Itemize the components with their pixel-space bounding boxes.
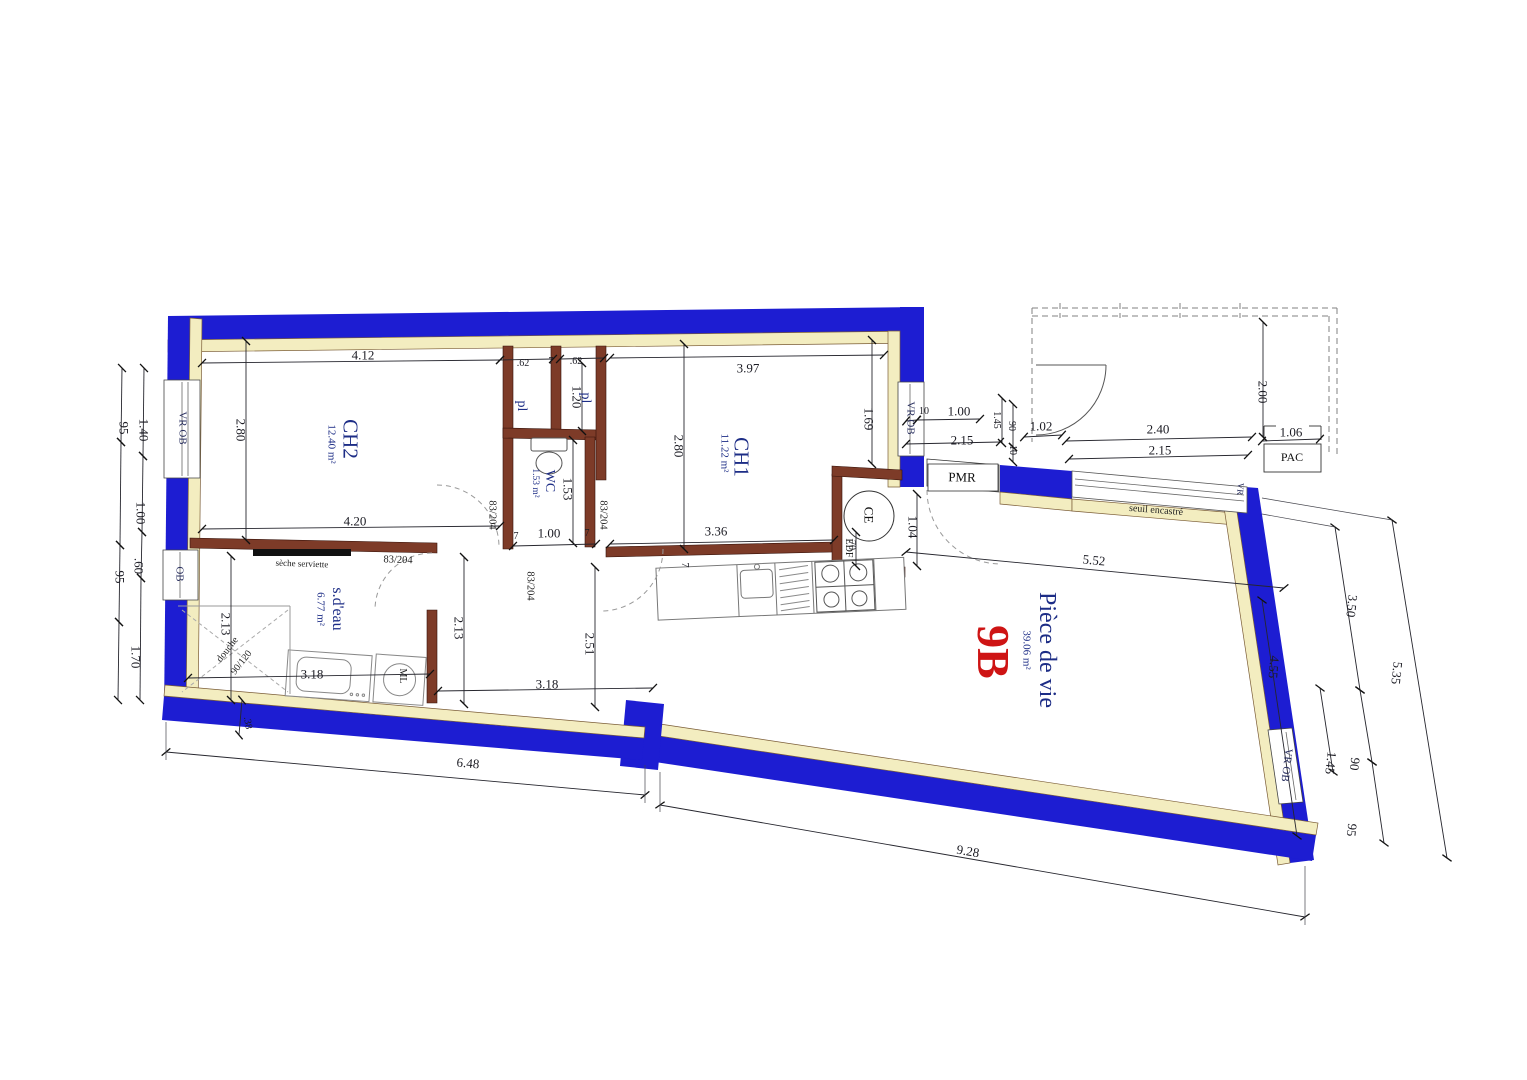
door-arc-sdeau — [375, 553, 432, 610]
terrace-door — [1036, 365, 1106, 435]
washing-machine-icon — [373, 654, 426, 705]
floor-plan-drawing — [0, 0, 1527, 1080]
window-vrob-top-glyph — [898, 382, 924, 456]
door-arc-ch2 — [437, 485, 499, 547]
floor-plan-sheet: 4.12.627.623.972.802.801.691.201.534.207… — [0, 0, 1527, 1080]
terrace-outline — [1032, 303, 1337, 455]
window-ob-left-glyph — [163, 550, 198, 600]
fixtures — [178, 426, 1321, 705]
kitchen-counter — [656, 557, 906, 620]
partitions — [190, 346, 905, 703]
pac-box — [1264, 426, 1321, 472]
toilet-icon — [531, 438, 567, 474]
water-heater-icon — [844, 491, 894, 541]
door-arc-ch1 — [601, 549, 663, 611]
bathroom-fixtures — [285, 648, 426, 706]
towel-radiator-icon — [253, 549, 351, 556]
pmr-box — [928, 464, 998, 491]
door-arc-entrance — [927, 490, 1001, 564]
